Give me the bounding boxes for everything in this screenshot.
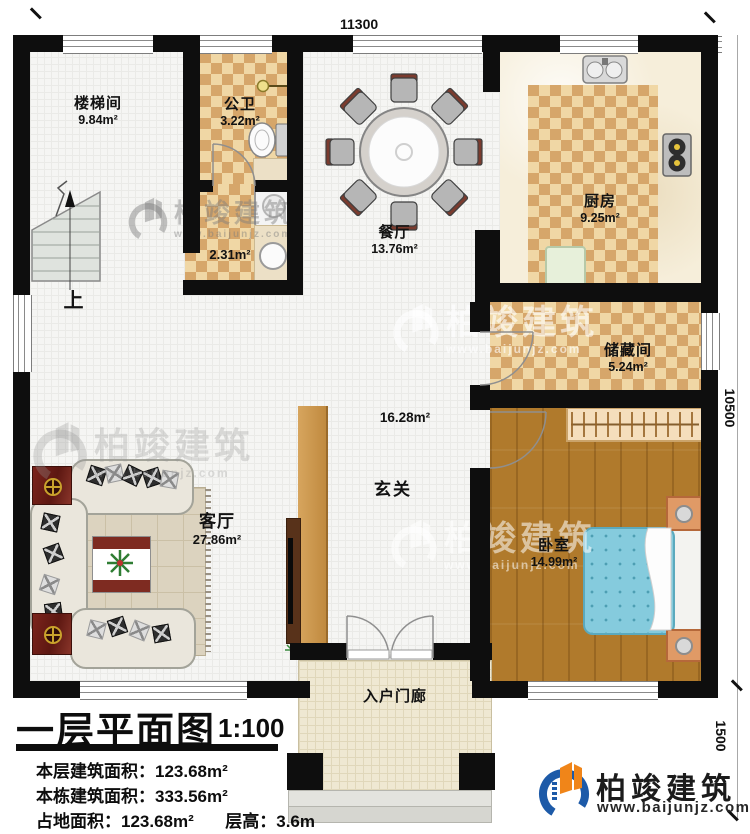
label-stairwell: 楼梯间 9.84m² [60,95,136,127]
label-storage: 储藏间 5.24m² [585,342,671,374]
label-porch: 入户门廊 [338,688,452,706]
bathroom-door [213,144,255,186]
stat-floor-area: 本层建筑面积：123.68m² [36,757,228,782]
entry-door-leaf [348,650,389,659]
entry-door-leaf [391,650,432,659]
brand-site: www.baijunjz.com [597,799,750,816]
label-bedroom: 卧室 14.99m² [516,537,592,569]
plan-scale: 1:100 [218,713,285,744]
bedroom-door [490,412,546,468]
title-underline [16,744,278,751]
stat-land-area: 占地面积：123.68m² 层高：3.6m [36,807,315,832]
floor-plan-canvas: 11300 10500 1500 [0,0,750,834]
label-living: 客厅 27.86m² [176,512,258,547]
label-dining: 餐厅 13.76m² [352,224,437,256]
brand-logo-icon [538,760,590,822]
label-hall: 玄关 [362,480,424,500]
label-laundry: 2.31m² [198,247,262,262]
label-bathroom: 公卫 3.22m² [204,96,276,128]
stat-building-area: 本栋建筑面积：333.56m² [36,782,228,807]
storage-door [480,332,533,385]
label-kitchen: 厨房 9.25m² [562,193,638,225]
label-hall-area: 16.28m² [370,410,440,426]
label-stairs-up: 上 [62,290,86,314]
